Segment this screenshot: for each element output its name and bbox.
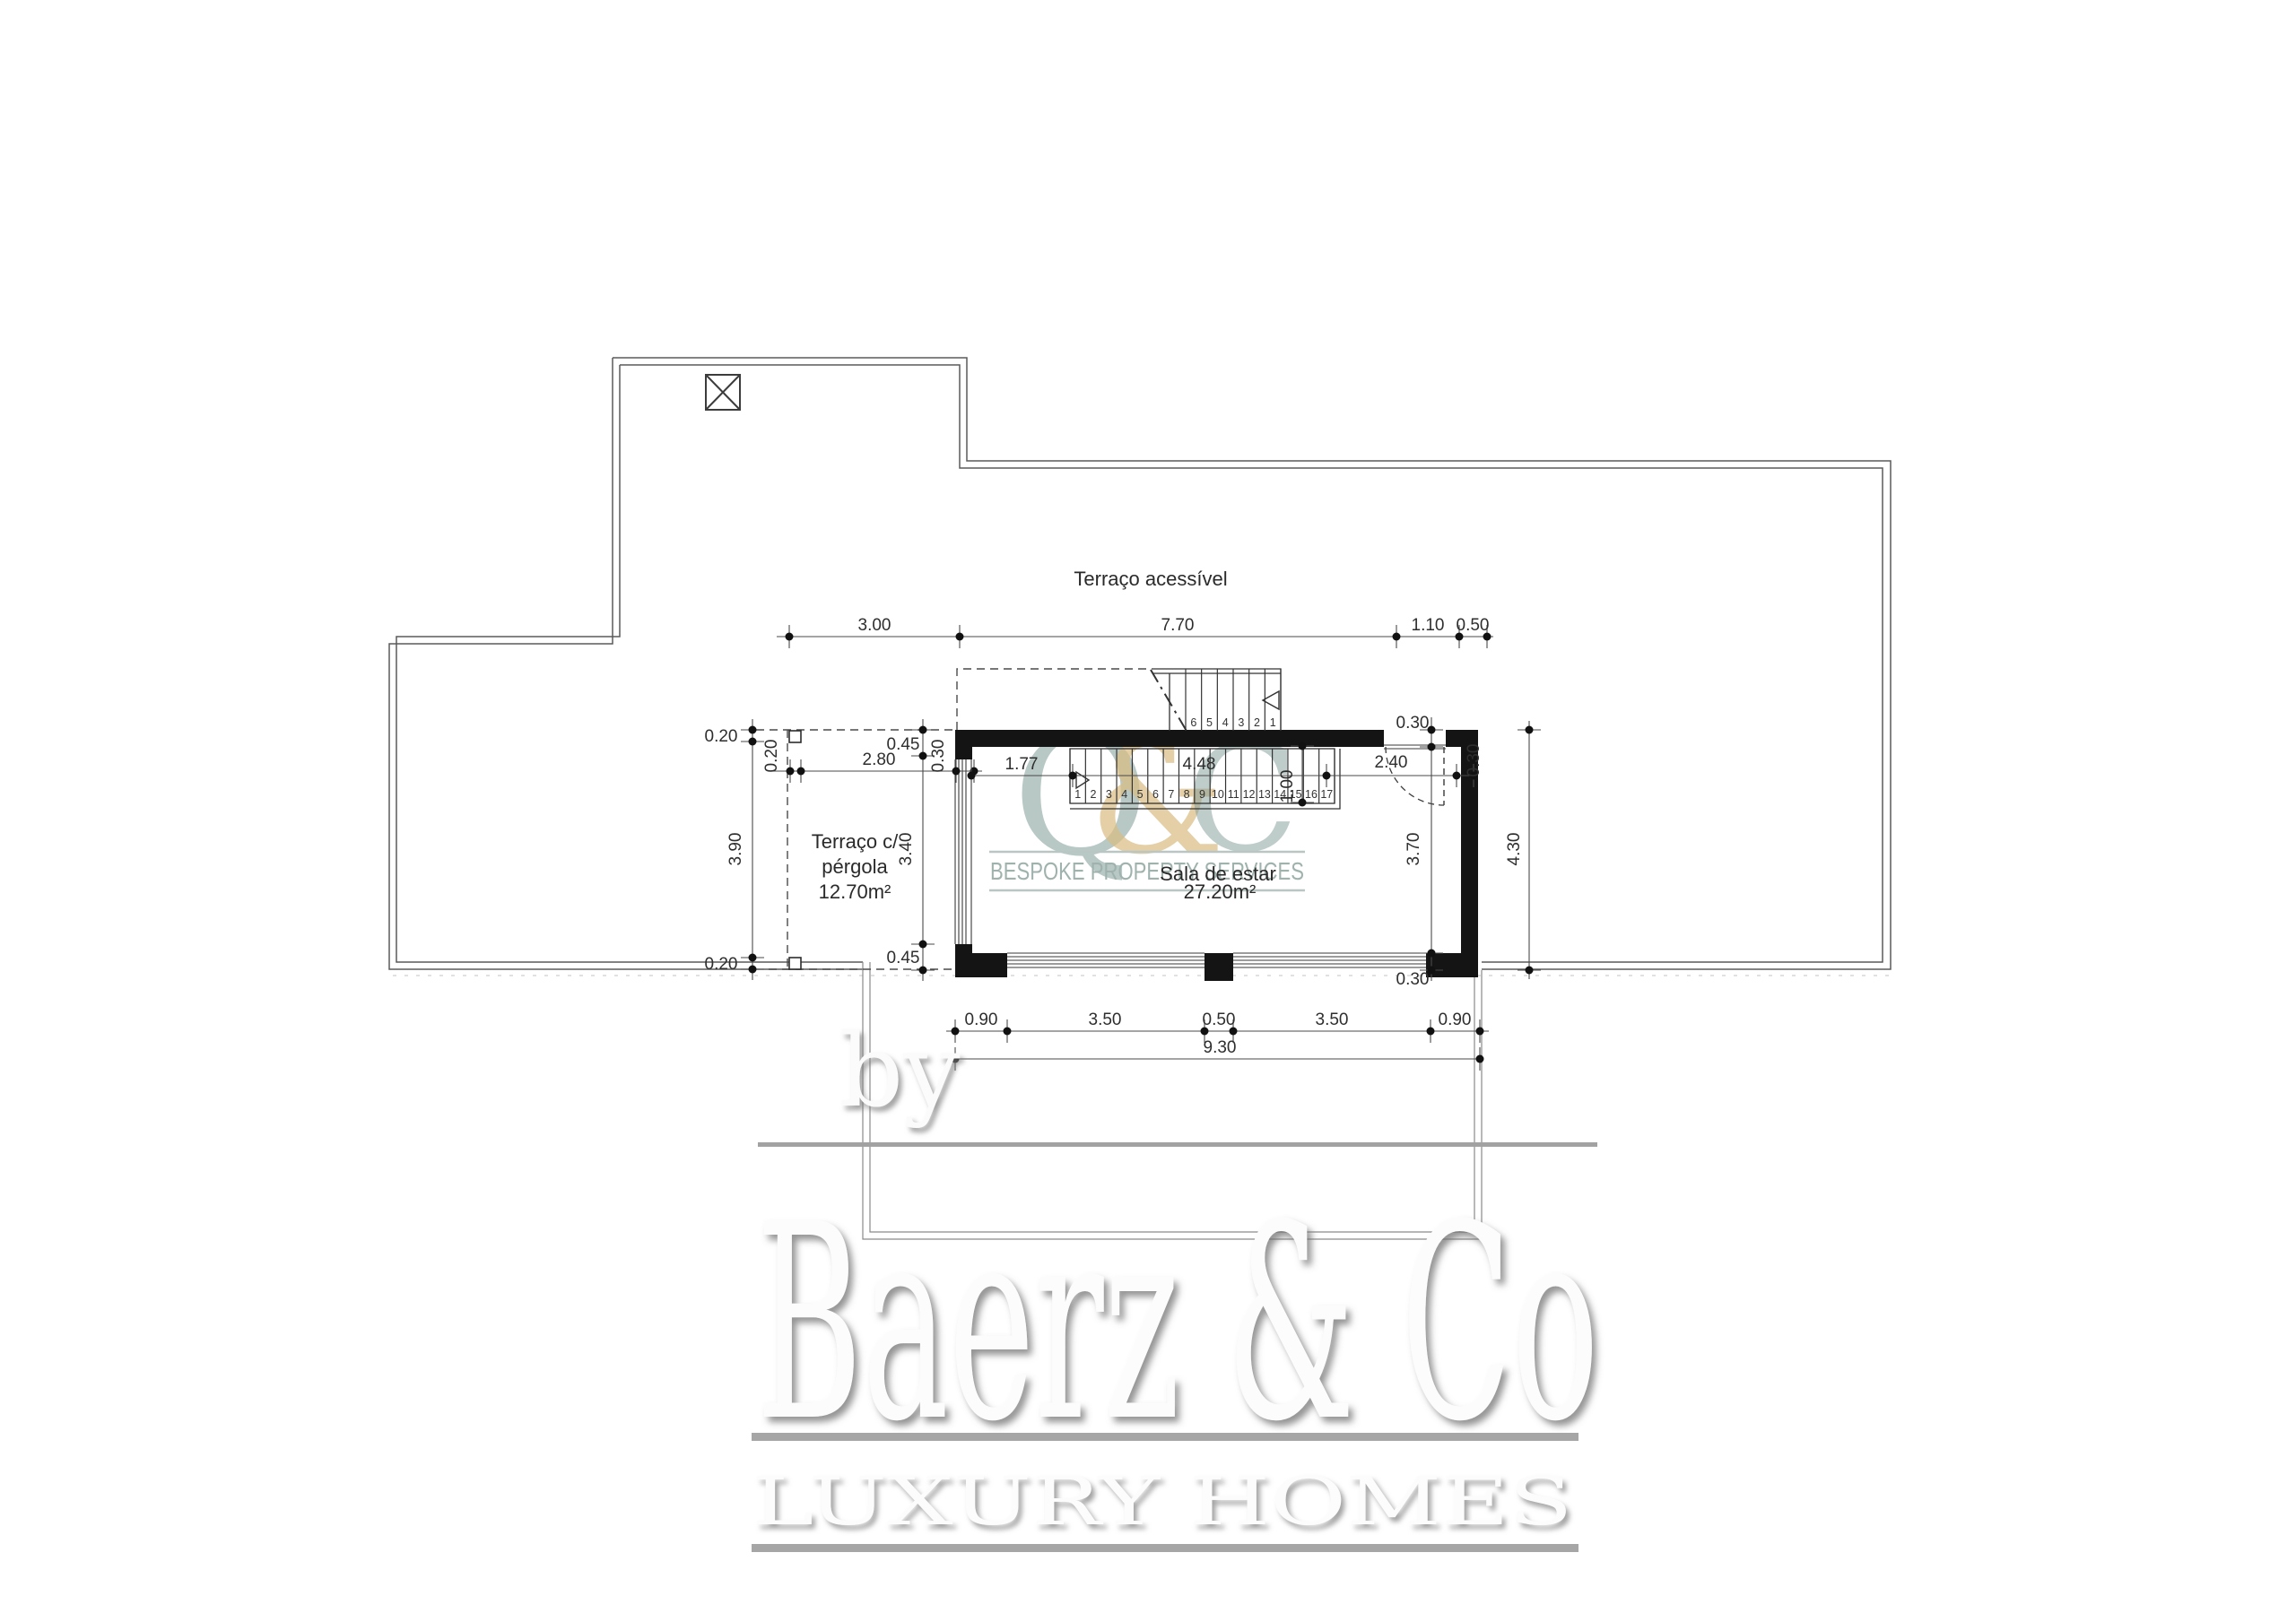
crossed-square-symbol	[706, 375, 740, 410]
dimension-label: 1.00	[1278, 770, 1297, 803]
dimension-label: 0.45	[887, 735, 920, 754]
stair-step-number: 6	[1152, 788, 1159, 801]
stair-step-number: 10	[1212, 788, 1224, 801]
pergola-label-line2: pérgola	[822, 855, 888, 878]
dimension-label: 1.10	[1412, 616, 1445, 635]
dimension-label: 0.30	[1465, 744, 1483, 777]
pergola-column-top	[789, 731, 801, 742]
stair-step-number: 3	[1106, 788, 1112, 801]
dimension-label: 9.30	[1204, 1038, 1237, 1057]
stair-step-number: 17	[1320, 788, 1333, 801]
stair-step-number: 9	[1199, 788, 1205, 801]
stair-step-number: 1	[1074, 788, 1081, 801]
stair-step-number: 8	[1184, 788, 1190, 801]
stair-step-number: 3	[1238, 716, 1244, 729]
watermark-by: by	[839, 1013, 961, 1130]
floorplan-page: { "drawing": { "rooms": { "terrace_label…	[0, 0, 2296, 1622]
floorplan-drawing: Q & C BESPOKE PROPERTY SERVICES	[0, 0, 2296, 1622]
brand-tagline: LUXURY HOMES	[752, 1463, 1573, 1540]
dimension-label: 0.20	[705, 955, 738, 974]
dimension-label: 0.45	[887, 949, 920, 967]
stair-step-number: 5	[1206, 716, 1213, 729]
dimension-label: 3.50	[1089, 1010, 1122, 1029]
pergola-columns	[789, 731, 801, 969]
dimension-label: 0.30	[929, 740, 948, 773]
dimension-label: 0.20	[762, 740, 781, 773]
pergola-label-line1: Terraço c/	[812, 830, 899, 853]
dimension-label: 3.40	[897, 833, 916, 866]
brand-rule-bottom	[752, 1544, 1578, 1552]
dimension-label: 4.48	[1183, 755, 1216, 774]
dimension-label: 0.50	[1203, 1010, 1236, 1029]
dimension-label: 0.30	[1396, 714, 1430, 733]
dimension-label: 0.30	[1396, 970, 1430, 989]
pergola-column-bottom	[789, 958, 801, 969]
dimension-label: 3.70	[1405, 833, 1423, 866]
stair-step-number: 13	[1258, 788, 1271, 801]
stair-step-number: 1	[1270, 716, 1276, 729]
stair-step-number: 4	[1222, 716, 1229, 729]
dimension-label: 4.30	[1505, 833, 1524, 866]
dimension-label: 3.50	[1316, 1010, 1349, 1029]
dimension-label: 3.00	[858, 616, 891, 635]
stair-step-number: 2	[1254, 716, 1260, 729]
dimension-label: 1.77	[1005, 755, 1039, 774]
living-label-line2: 27.20m²	[1184, 880, 1257, 903]
footer-watermark: by Baerz & Co LUXURY HOMES	[752, 1013, 1599, 1552]
stair-step-number: 7	[1168, 788, 1174, 801]
dimension-label: 0.90	[965, 1010, 998, 1029]
dimension-label: 0.20	[705, 727, 738, 746]
pergola-label-line3: 12.70m²	[819, 880, 891, 903]
stair-step-number: 5	[1137, 788, 1144, 801]
stair-step-number: 4	[1121, 788, 1127, 801]
stair-step-number: 16	[1305, 788, 1318, 801]
dimension-label: 7.70	[1161, 616, 1195, 635]
terrace-label: Terraço acessível	[1074, 568, 1227, 590]
dimension-label: 0.90	[1439, 1010, 1472, 1029]
dimension-label: 3.90	[726, 833, 745, 866]
brand-rule-mid	[752, 1433, 1578, 1441]
dimension-label: 0.50	[1457, 616, 1490, 635]
brand-rule-top	[758, 1142, 1597, 1147]
stair-step-number: 6	[1190, 716, 1196, 729]
dimension-label: 2.40	[1375, 753, 1408, 772]
left-window	[955, 759, 971, 944]
stair-step-number: 12	[1243, 788, 1256, 801]
stair-step-number: 2	[1091, 788, 1097, 801]
stair-step-number: 11	[1228, 788, 1239, 801]
